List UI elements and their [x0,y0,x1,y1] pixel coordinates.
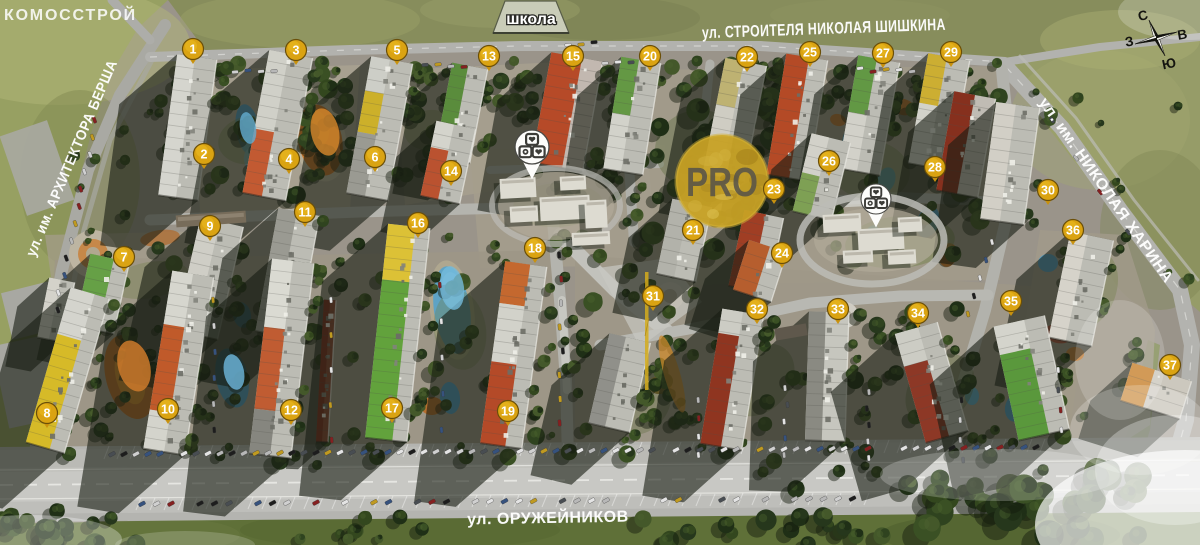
svg-text:30: 30 [1041,184,1055,198]
svg-text:4: 4 [286,153,293,167]
svg-text:36: 36 [1066,224,1080,238]
svg-text:16: 16 [411,217,425,231]
svg-text:7: 7 [121,251,128,265]
svg-text:школа: школа [506,11,556,28]
svg-text:37: 37 [1163,359,1177,373]
svg-text:9: 9 [207,220,214,234]
svg-text:5: 5 [394,44,401,58]
svg-text:29: 29 [944,46,958,60]
svg-text:12: 12 [284,404,298,418]
svg-text:23: 23 [767,183,781,197]
svg-text:2: 2 [201,148,208,162]
svg-text:33: 33 [831,303,845,317]
svg-text:17: 17 [385,402,399,416]
svg-text:КОМОССТРОЙ: КОМОССТРОЙ [4,5,137,24]
svg-text:6: 6 [372,151,379,165]
svg-text:26: 26 [822,155,836,169]
svg-text:PRO: PRO [686,159,758,205]
svg-text:21: 21 [686,224,700,238]
svg-text:27: 27 [876,47,890,61]
svg-text:11: 11 [298,206,311,220]
svg-text:15: 15 [566,50,580,64]
svg-text:25: 25 [803,46,817,60]
svg-text:1: 1 [190,43,197,57]
svg-text:14: 14 [444,165,458,179]
svg-text:34: 34 [911,307,925,321]
svg-text:22: 22 [740,51,754,65]
svg-text:31: 31 [646,290,660,304]
svg-text:13: 13 [482,50,496,64]
svg-text:3: 3 [293,44,300,58]
svg-text:20: 20 [643,50,657,64]
svg-text:24: 24 [775,247,789,261]
svg-text:10: 10 [161,403,175,417]
svg-text:8: 8 [44,407,51,421]
svg-text:28: 28 [928,161,942,175]
svg-text:19: 19 [501,405,515,419]
svg-text:32: 32 [750,303,764,317]
svg-text:18: 18 [528,242,542,256]
svg-text:35: 35 [1004,295,1018,309]
